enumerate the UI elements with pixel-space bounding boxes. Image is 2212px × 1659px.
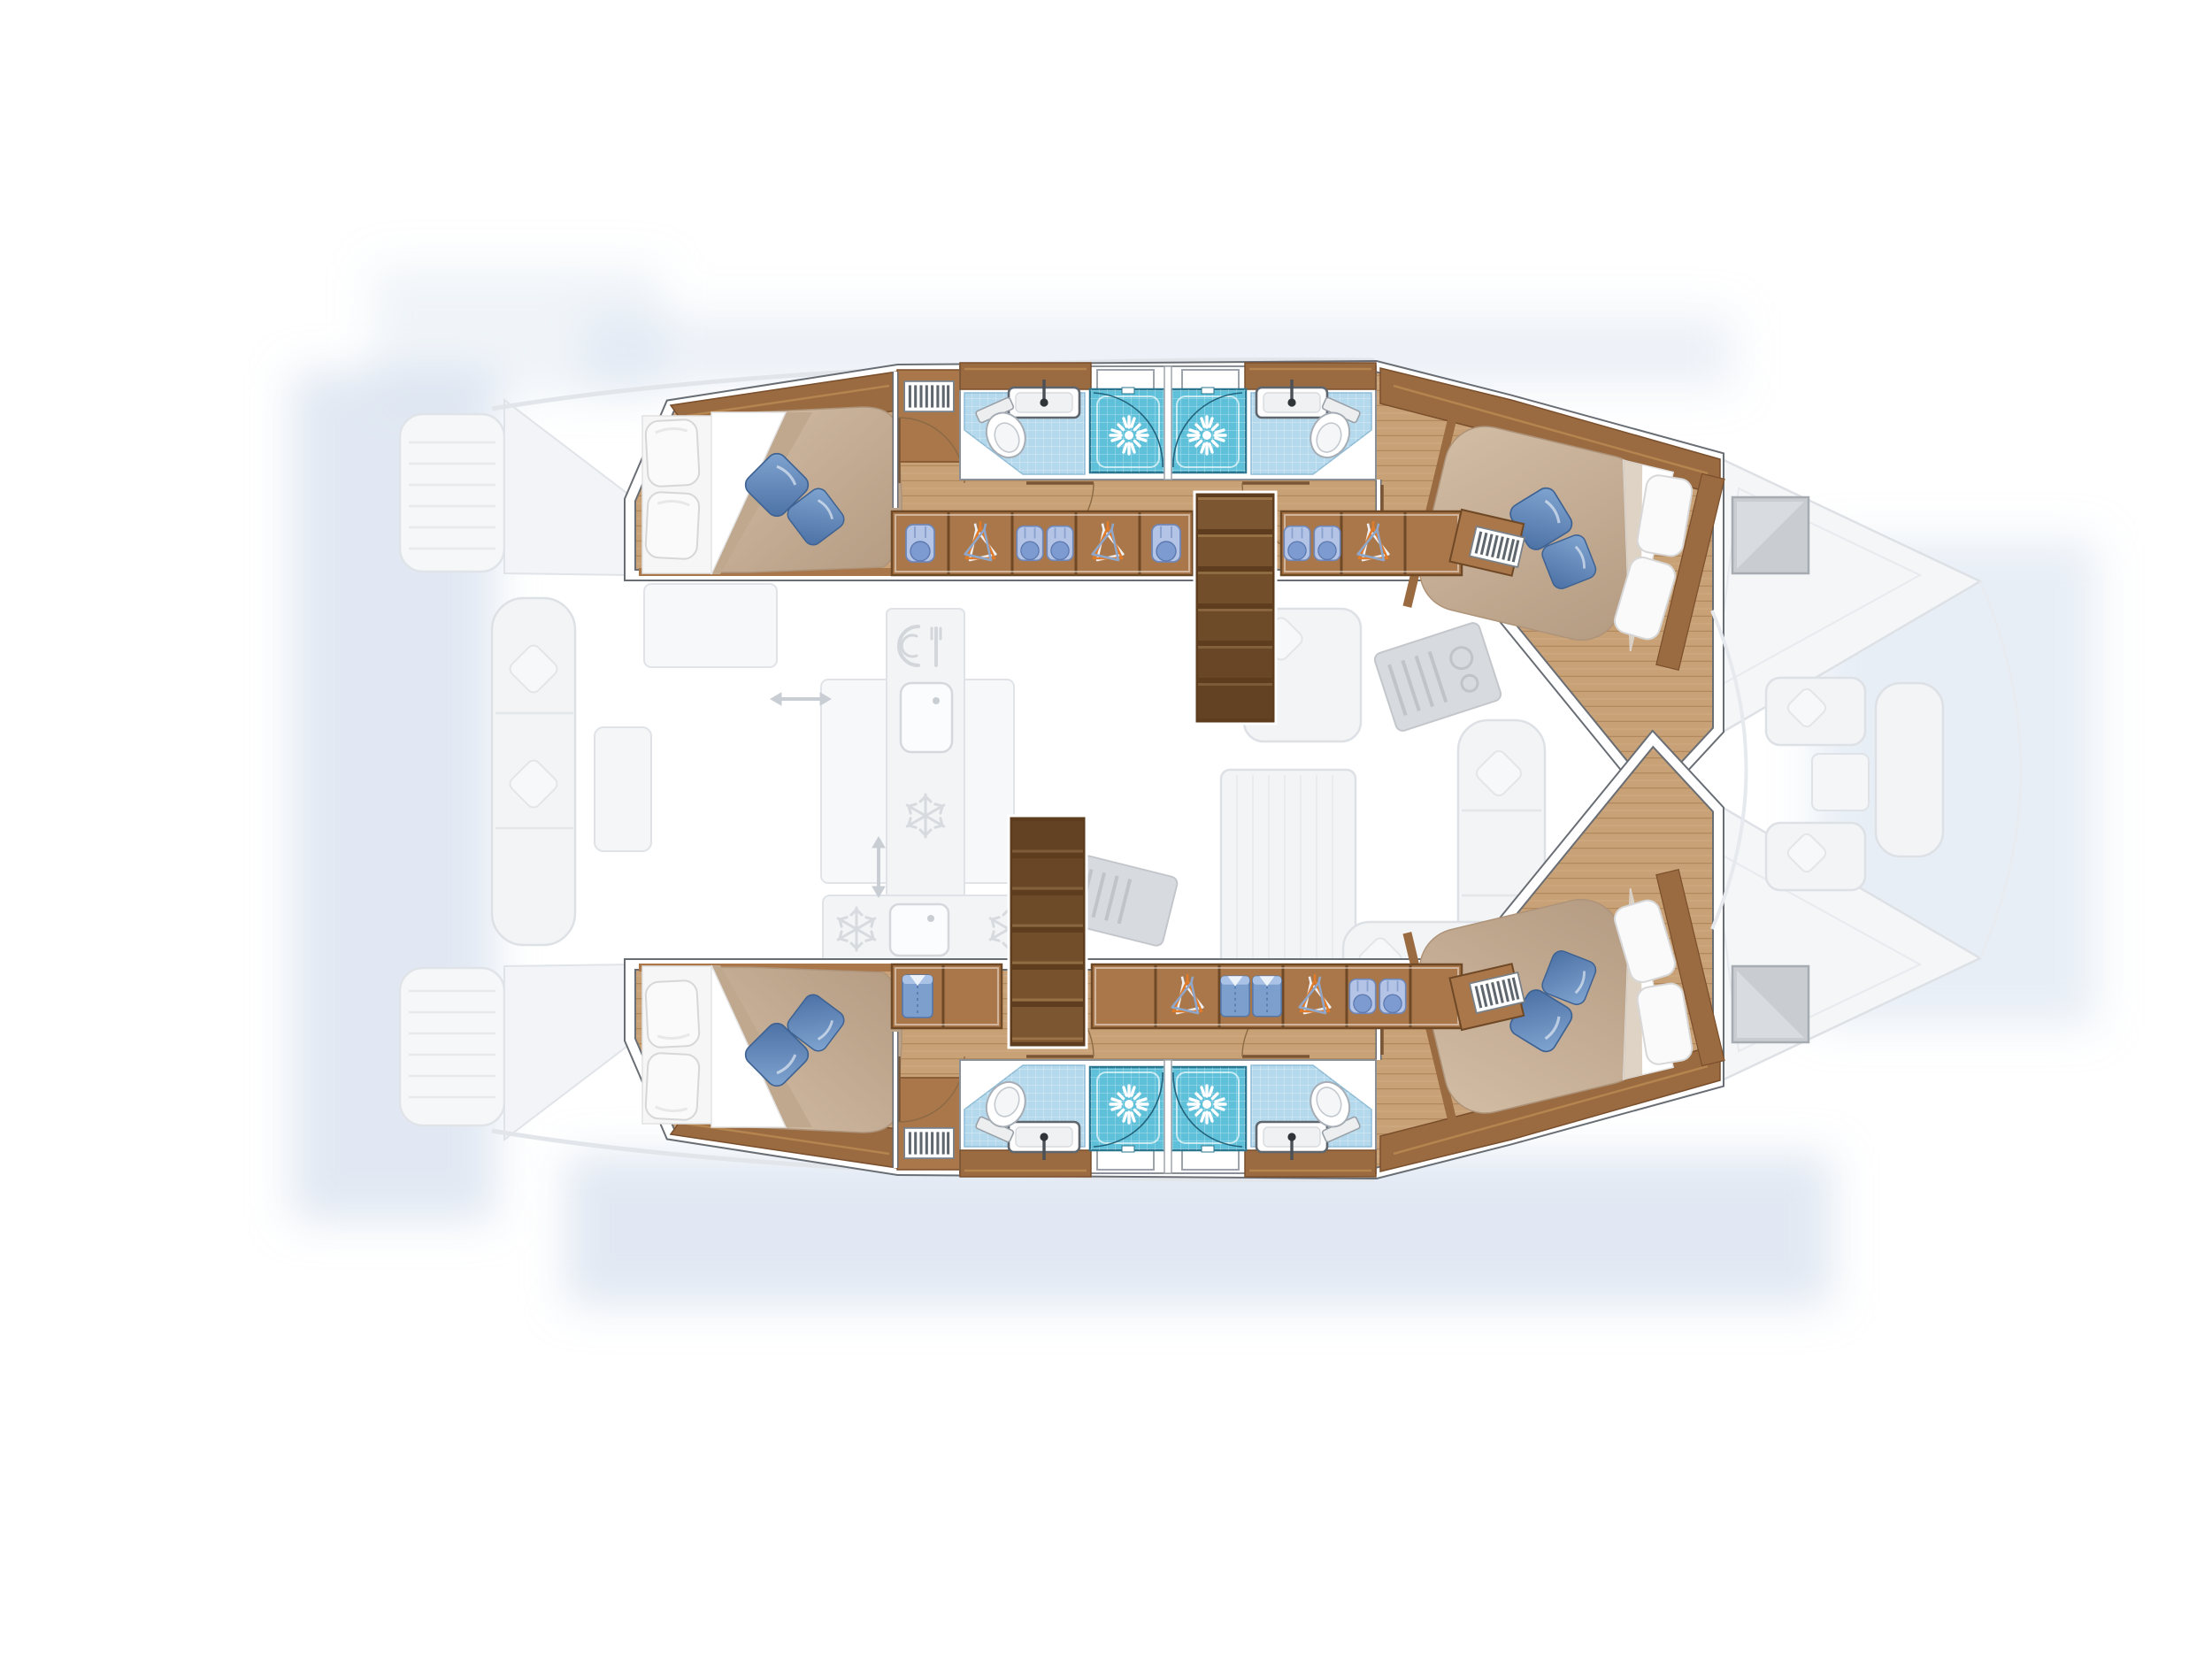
starboard-companionway-stairs	[1009, 816, 1087, 1048]
stove-ghost	[1373, 621, 1502, 733]
port-companionway-stairs	[1194, 492, 1276, 724]
galley-sink	[890, 904, 949, 956]
starboard-wardrobe-row	[892, 964, 1525, 1030]
catamaran-floor-plan	[0, 0, 2212, 1659]
forward-bench	[1876, 683, 1943, 856]
side-counter	[644, 584, 777, 667]
saloon-table	[1221, 770, 1356, 966]
cockpit-table	[595, 727, 651, 851]
galley-sink	[901, 683, 952, 752]
aft-cockpit-ghost	[492, 598, 651, 945]
forward-table	[1812, 754, 1869, 810]
floor-plan-canvas	[0, 0, 2212, 1659]
